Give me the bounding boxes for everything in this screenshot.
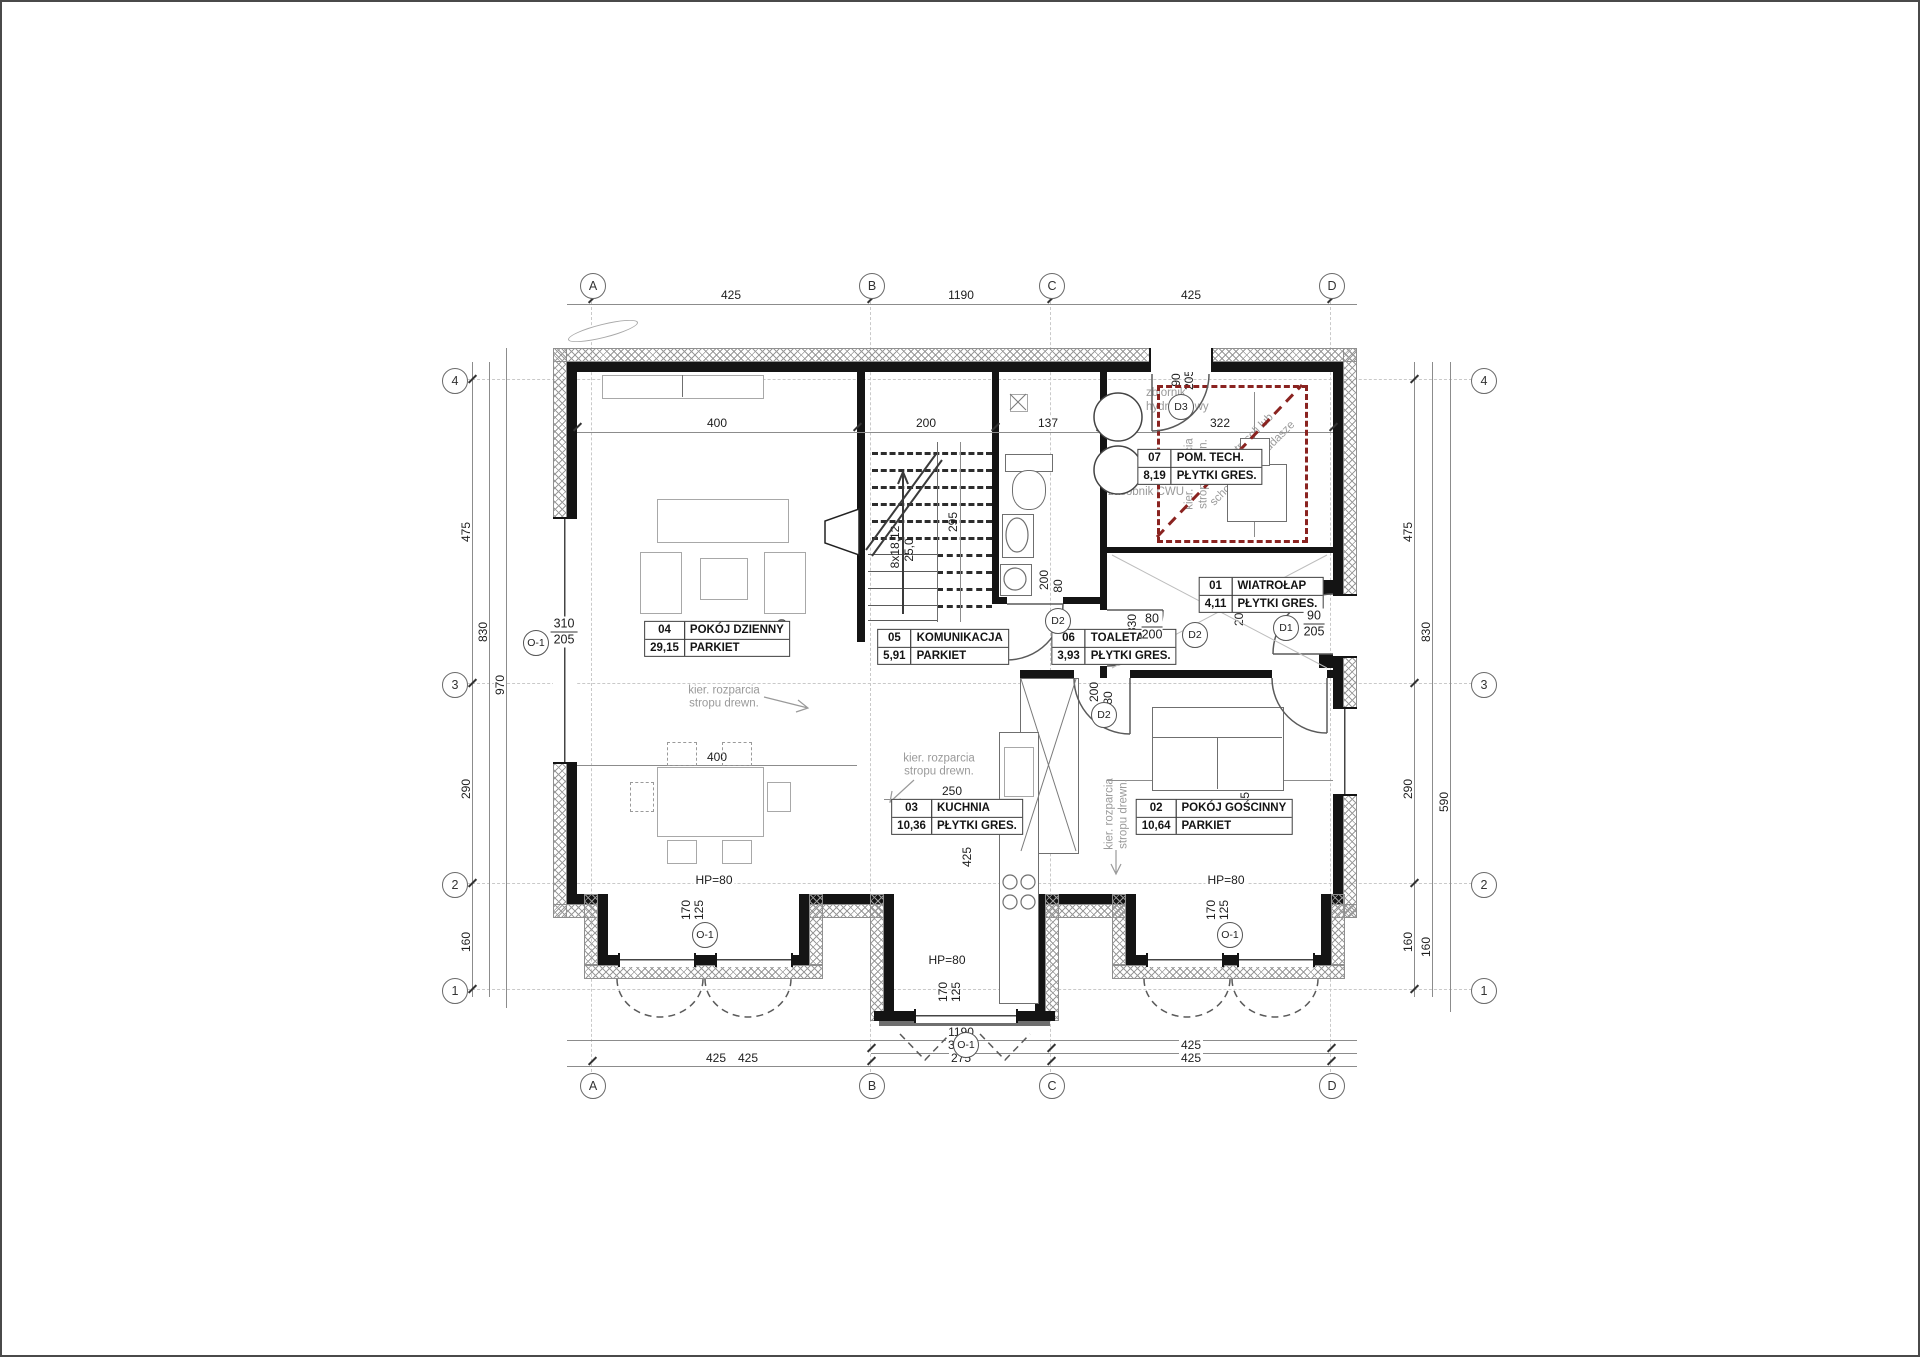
room-floor: PARKIET xyxy=(1175,817,1291,835)
room-area: 4,11 xyxy=(1200,595,1233,613)
dim-label: 830 xyxy=(1420,620,1432,644)
chair xyxy=(667,742,697,766)
room-area: 10,36 xyxy=(892,817,932,835)
dim-label: 830 xyxy=(477,620,489,644)
door-tag-d3: D3 xyxy=(1168,394,1194,420)
stair-tread-upper xyxy=(937,554,992,557)
entry-chevron xyxy=(900,1034,950,1060)
window-guest-east xyxy=(1333,707,1357,796)
stair-tread-upper xyxy=(872,469,992,472)
armchair xyxy=(640,552,682,614)
dim-label: 160 xyxy=(1402,930,1414,954)
door-dim: 200 xyxy=(1142,628,1163,642)
porch-insulation xyxy=(870,894,884,1021)
dim-label: 400 xyxy=(705,417,729,429)
wall-toilet-hall xyxy=(1100,372,1107,610)
axis-c-bottom: C xyxy=(1039,1073,1065,1099)
stair-dim-line xyxy=(960,442,961,622)
dim-label: 425 xyxy=(1179,289,1203,301)
washing-machine xyxy=(1000,564,1032,596)
bay-insulation xyxy=(584,965,823,979)
sill-height-label: HP=80 xyxy=(693,874,734,886)
stair-tread xyxy=(868,605,937,606)
window-tag: O-1 xyxy=(953,1032,979,1058)
room-floor: PŁYTKI GRES. xyxy=(1085,647,1176,665)
insulation-top xyxy=(553,348,1357,362)
axis-b-bottom: B xyxy=(859,1073,885,1099)
room-floor: PARKIET xyxy=(911,647,1008,665)
stair-center-line xyxy=(937,442,938,622)
room-name: POKÓJ GOŚCINNY xyxy=(1175,800,1291,817)
wall-right-upper xyxy=(1333,362,1343,594)
grid-line-3 xyxy=(467,683,1472,684)
dim-label: 1190 xyxy=(946,289,976,301)
axis-a-bottom: A xyxy=(580,1073,606,1099)
dim-label: 425 xyxy=(1179,1052,1203,1064)
room-table-komunikacja: 05KOMUNIKACJA 5,91PARKIET xyxy=(877,629,1009,665)
sofa xyxy=(657,499,789,543)
room-area: 29,15 xyxy=(645,639,685,657)
window-dim: 125 xyxy=(1218,898,1230,922)
chair xyxy=(767,782,791,812)
wall-toilet-bottom xyxy=(999,597,1007,604)
door-tag-d2: D2 xyxy=(1182,622,1208,648)
room-name: KOMUNIKACJA xyxy=(911,630,1008,647)
window-dim: 125 xyxy=(950,980,962,1004)
dim-label: 160 xyxy=(1420,935,1432,959)
room-no: 05 xyxy=(878,630,911,647)
door-dim: 90 xyxy=(1304,609,1325,625)
wall-tech-vestibule xyxy=(1107,547,1333,553)
window-dim: 170 xyxy=(937,980,949,1004)
room-floor: PARKIET xyxy=(684,639,789,657)
dim-tick xyxy=(867,1043,876,1052)
axis-d-bottom: D xyxy=(1319,1073,1345,1099)
stair-note: 8x18,12 xyxy=(889,524,901,571)
terrace-arc xyxy=(705,979,791,1017)
porch-wall xyxy=(884,894,894,1021)
window-dim: 170 xyxy=(1205,898,1217,922)
stair-tread-upper xyxy=(872,486,992,489)
span-note: kier. rozparcia xyxy=(688,684,760,697)
dim-label: 137 xyxy=(1036,417,1060,429)
wall-stair-toilet xyxy=(992,372,999,604)
wall-guest-north xyxy=(1130,670,1272,678)
bay-window xyxy=(618,953,696,967)
bay-insulation xyxy=(1112,965,1345,979)
sill-height-label: HP=80 xyxy=(926,954,967,966)
room-table-kuchnia: 03KUCHNIA 10,36PŁYTKI GRES. xyxy=(891,799,1023,835)
dim-tick xyxy=(1047,1056,1056,1065)
window-dim: 125 xyxy=(693,898,705,922)
dim-line-right-2 xyxy=(1432,362,1433,997)
kitchen-sink xyxy=(1004,747,1034,797)
axis-b-top: B xyxy=(859,273,885,299)
window-dim-fraction: 310 205 xyxy=(551,617,578,648)
stair-tread-upper xyxy=(872,503,992,506)
span-note: stropu drewn. xyxy=(904,765,974,778)
bay-insulation xyxy=(1331,894,1345,965)
door-dim: 80 xyxy=(1142,612,1163,628)
room-name: WIATROŁAP xyxy=(1231,578,1322,595)
span-note: stropu drewn. xyxy=(1117,779,1130,849)
grid-line-1 xyxy=(467,989,1472,990)
door-dim: 200 xyxy=(1038,568,1050,592)
dim-label: 290 xyxy=(1402,777,1414,801)
guest-sofa xyxy=(1152,707,1284,791)
dim-line-bottom-2 xyxy=(871,1053,1357,1054)
wall-top xyxy=(567,362,1343,372)
living-cabinet xyxy=(602,375,764,399)
dim-tick xyxy=(1327,1043,1336,1052)
wall-kitchen-north xyxy=(1020,670,1074,678)
wall-toilet-hall xyxy=(1100,666,1107,678)
room-area: 10,64 xyxy=(1137,817,1177,835)
room-floor: PŁYTKI GRES. xyxy=(1171,467,1262,485)
dim-label: 295 xyxy=(947,510,959,534)
chair xyxy=(667,840,697,864)
window-dim: 310 xyxy=(551,617,578,633)
window-tag: O-1 xyxy=(523,630,549,656)
dim-label: 425 xyxy=(961,845,973,869)
stair-tread-upper xyxy=(937,571,992,574)
porch-window xyxy=(914,1009,1018,1023)
dim-label: 425 xyxy=(736,1052,760,1064)
axis-1-left: 1 xyxy=(442,978,468,1004)
span-note: kier. rozparcia xyxy=(903,752,975,765)
axis-4-left: 4 xyxy=(442,368,468,394)
dim-label: 475 xyxy=(1402,520,1414,544)
stair-tread xyxy=(868,620,937,621)
span-note: kier. rozparcia xyxy=(1103,778,1116,850)
wall-toilet-bottom xyxy=(1063,597,1100,604)
axis-4-right: 4 xyxy=(1471,368,1497,394)
porch-insulation xyxy=(1045,894,1059,1021)
stair-tread-upper xyxy=(872,452,992,455)
stair-tread-upper xyxy=(937,605,992,608)
axis-2-right: 2 xyxy=(1471,872,1497,898)
window-tag: O-1 xyxy=(692,922,718,948)
door-tag-d2: D2 xyxy=(1091,702,1117,728)
window-dim: 205 xyxy=(554,633,575,647)
bay-insulation xyxy=(809,894,823,965)
room-name: POM. TECH. xyxy=(1171,450,1262,467)
room-name: KUCHNIA xyxy=(931,800,1022,817)
tech-door-opening xyxy=(1149,348,1213,372)
door-dim: 205 xyxy=(1304,625,1325,639)
stair-tread-upper xyxy=(937,588,992,591)
room-area: 5,91 xyxy=(878,647,911,665)
guest-sofa-line xyxy=(1217,737,1218,789)
terrace-arc xyxy=(617,979,703,1017)
axis-c-top: C xyxy=(1039,273,1065,299)
dim-tick xyxy=(1327,1056,1336,1065)
window-dim: 170 xyxy=(680,898,692,922)
dim-label: 475 xyxy=(460,520,472,544)
dim-label: 160 xyxy=(460,930,472,954)
room-no: 03 xyxy=(892,800,932,817)
dining-table xyxy=(657,767,764,837)
bay-window xyxy=(715,953,793,967)
stair-note: 25,0 xyxy=(903,536,915,563)
dim-label: 425 xyxy=(719,289,743,301)
dim-line xyxy=(577,765,857,766)
axis-d-top: D xyxy=(1319,273,1345,299)
room-table-pokoj-goscinny: 02POKÓJ GOŚCINNY 10,64PARKIET xyxy=(1136,799,1293,835)
chair xyxy=(630,782,654,812)
room-area: 3,93 xyxy=(1052,647,1085,665)
entry-chevron xyxy=(980,1034,1030,1060)
window-tag: O-1 xyxy=(1217,922,1243,948)
room-no: 07 xyxy=(1138,450,1171,467)
dim-line-right-3 xyxy=(1450,362,1451,1012)
door-dim-fraction: 80 200 xyxy=(1142,612,1163,643)
armchair xyxy=(764,552,806,614)
dim-label: 200 xyxy=(914,417,938,429)
wall-guest-north xyxy=(1327,670,1333,678)
stair-tread xyxy=(868,588,937,589)
terrace-arc xyxy=(1144,979,1230,1017)
axis-1-right: 1 xyxy=(1471,978,1497,1004)
door-dim: 200 xyxy=(1088,680,1100,704)
dim-label: 425 xyxy=(1179,1039,1203,1051)
sill-height-label: HP=80 xyxy=(1205,874,1246,886)
room-no: 01 xyxy=(1200,578,1233,595)
entrance-door-opening xyxy=(1333,594,1357,658)
plan-linework xyxy=(2,2,1920,1357)
bay-insulation xyxy=(584,894,598,965)
stair-tread-upper xyxy=(872,520,992,523)
floor-drain xyxy=(1010,394,1028,412)
axis-a-top: A xyxy=(580,273,606,299)
span-arrow xyxy=(1111,850,1121,874)
living-cabinet-divider xyxy=(682,375,683,397)
wc-bowl xyxy=(1012,470,1046,510)
dim-label: 250 xyxy=(940,785,964,797)
door-dim: 80 xyxy=(1052,577,1064,594)
dim-label: 970 xyxy=(494,673,506,697)
span-arrow xyxy=(764,697,808,712)
room-area: 8,19 xyxy=(1138,467,1171,485)
door-tag-d2: D2 xyxy=(1045,608,1071,634)
dim-line-top xyxy=(567,304,1357,305)
axis-2-left: 2 xyxy=(442,872,468,898)
door-dim-fraction: 90 205 xyxy=(1304,609,1325,640)
chair xyxy=(722,840,752,864)
room-no: 02 xyxy=(1137,800,1177,817)
fireplace xyxy=(825,509,859,555)
span-note: stropu drewn. xyxy=(689,697,759,710)
axis-3-left: 3 xyxy=(442,672,468,698)
dim-label: 290 xyxy=(460,777,472,801)
dim-line-bottom-3 xyxy=(567,1066,1357,1067)
bay-window xyxy=(1146,953,1224,967)
room-no: 04 xyxy=(645,622,685,639)
room-floor: PŁYTKI GRES. xyxy=(931,817,1022,835)
north-symbol xyxy=(566,315,639,346)
stair-tread xyxy=(868,571,937,572)
floor-plan-sheet: 425 1190 425 A B C D 1190 340 425 425 42… xyxy=(0,0,1920,1357)
dim-label: 425 xyxy=(704,1052,728,1064)
door-tag-d1: D1 xyxy=(1273,615,1299,641)
dim-tick xyxy=(1047,1043,1056,1052)
grid-line-2 xyxy=(467,883,1472,884)
axis-3-right: 3 xyxy=(1471,672,1497,698)
room-name: POKÓJ DZIENNY xyxy=(684,622,789,639)
wall-living-stair xyxy=(857,372,865,642)
room-table-pokoj-dzienny: 04POKÓJ DZIENNY 29,15PARKIET xyxy=(644,621,790,657)
chair xyxy=(722,742,752,766)
dim-tick xyxy=(588,1056,597,1065)
washbasin-counter xyxy=(1002,514,1034,558)
terrace-arc xyxy=(1232,979,1318,1017)
dim-label: 590 xyxy=(1438,790,1450,814)
bay-window xyxy=(1237,953,1315,967)
room-table-pom-tech: 07POM. TECH. 8,19PŁYTKI GRES. xyxy=(1137,449,1262,485)
dim-tick xyxy=(867,1056,876,1065)
bay-insulation xyxy=(1112,894,1126,965)
coffee-table xyxy=(700,558,748,600)
dim-line-left-2 xyxy=(489,362,490,997)
